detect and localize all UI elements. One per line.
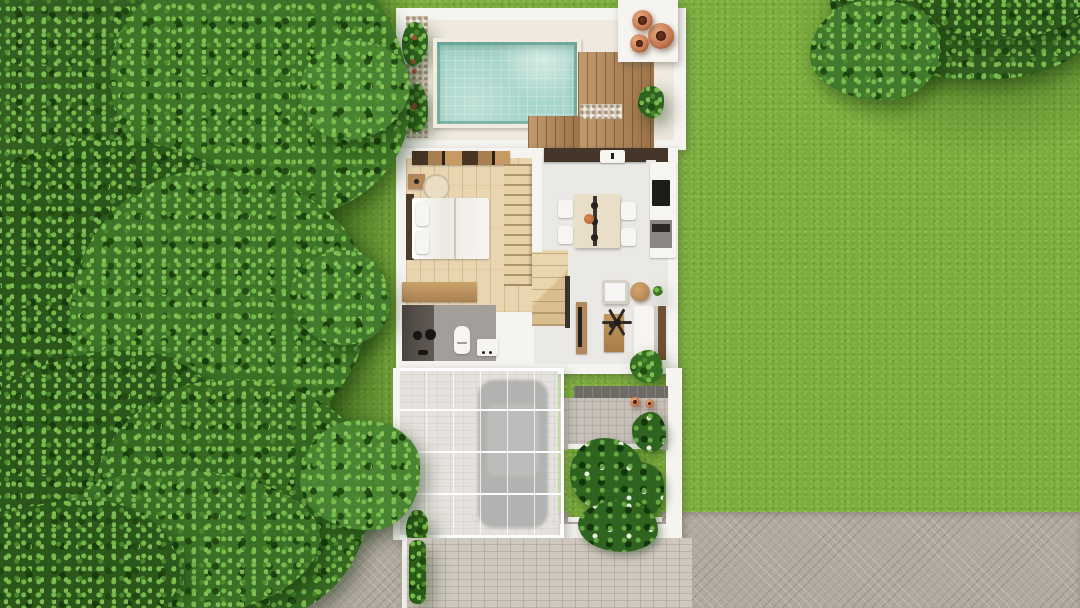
terracotta-pot-medium [632, 10, 653, 31]
sofa-back-shelf [658, 306, 666, 360]
shower-head-1 [413, 331, 422, 340]
terracotta-pot-large [648, 23, 674, 49]
bed-pillow-top [416, 203, 429, 226]
vanity-faucet-2 [489, 351, 492, 354]
fan-hub [614, 319, 621, 326]
round-side-table [630, 282, 650, 302]
deck-side-plant [638, 86, 664, 118]
duvet-fold [454, 198, 456, 259]
indoor-bush [630, 350, 663, 383]
shower-fixture [418, 350, 428, 355]
courtyard-plant-flowers [408, 34, 422, 124]
pot-opening [648, 402, 652, 406]
tree-shadow-on-lawn-top-right [770, 0, 1080, 170]
floorplan-render [0, 0, 1080, 608]
pot-opening [656, 31, 667, 42]
pot-opening [636, 40, 644, 48]
stairs-landing [532, 250, 568, 326]
dining-chair-left-2 [558, 226, 573, 244]
deck-pebble-strip [580, 104, 622, 119]
bed-pillow-bottom [416, 231, 429, 254]
nightstand-lamp [414, 179, 419, 184]
tv-screen [578, 307, 582, 347]
shower-head-2 [425, 329, 436, 340]
stairs-upper-flight [504, 164, 532, 286]
vanity-faucet [482, 351, 485, 354]
entry-right-wall [666, 368, 682, 540]
pendant-light-1 [591, 202, 598, 209]
pendant-light-3 [591, 234, 598, 241]
dining-chair-right-2 [621, 228, 636, 246]
dining-chair-left-1 [558, 200, 573, 218]
kitchen-counter-top [544, 148, 646, 162]
dresser [402, 282, 477, 302]
armchair [602, 280, 628, 304]
bedroom-partition-wall [532, 148, 542, 252]
pot-opening [633, 400, 637, 404]
swimming-pool [437, 42, 577, 124]
terracotta-pot-small [630, 34, 649, 53]
driveway-plant-strip [409, 540, 426, 604]
toilet [454, 326, 470, 354]
entry-pot-2 [645, 399, 654, 408]
cabinet-dark-band [652, 224, 670, 232]
driveway-pavers [406, 538, 692, 608]
toilet-seat-line [457, 342, 467, 344]
ceiling-fan [602, 307, 632, 337]
stairs-divider-wall [565, 276, 570, 328]
dining-chair-right-1 [621, 202, 636, 220]
wardrobe [412, 151, 510, 165]
fruit-bowl [584, 214, 594, 224]
fridge [652, 180, 670, 206]
carport-left-post [393, 368, 400, 540]
round-rug [423, 174, 450, 201]
pool-deck-corner [528, 116, 580, 148]
sink-faucet [611, 153, 614, 159]
driveway-edge [402, 538, 407, 608]
pot-opening [638, 16, 647, 25]
bathroom-vanity [477, 339, 498, 356]
tropical-plants-upper [632, 412, 666, 452]
entry-pot-1 [630, 397, 640, 407]
entry-step [574, 386, 668, 398]
